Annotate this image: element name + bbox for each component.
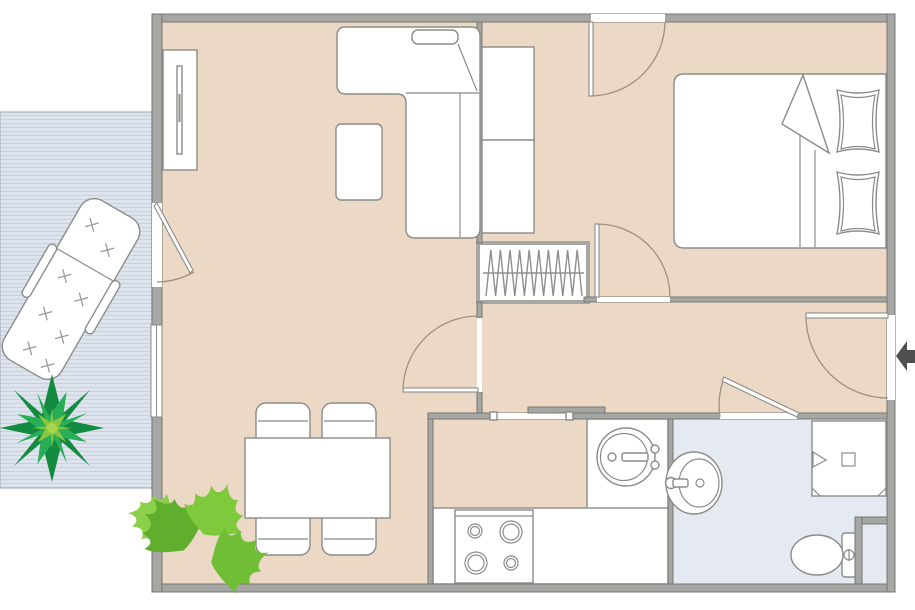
toilet[interactable] xyxy=(791,533,858,577)
tv-icon xyxy=(179,94,181,122)
wardrobe[interactable] xyxy=(482,47,534,233)
entry-arrow-icon xyxy=(896,341,915,371)
wall-living-east-stub2 xyxy=(477,392,482,413)
wall-exterior-top xyxy=(152,14,895,22)
dining-table[interactable] xyxy=(245,438,390,518)
wall-exterior-right xyxy=(887,14,895,592)
bathroom-sink[interactable] xyxy=(666,452,723,514)
wall-exterior-bottom xyxy=(152,584,895,592)
shower[interactable] xyxy=(812,421,886,496)
radiator[interactable] xyxy=(478,243,588,302)
stove[interactable] xyxy=(455,510,533,583)
floor-plan-canvas xyxy=(0,0,915,610)
floor-plan-page xyxy=(0,0,915,610)
tv-unit[interactable] xyxy=(163,50,197,170)
window xyxy=(151,325,162,417)
coffee-table[interactable] xyxy=(336,124,382,200)
wall-kitchen-west xyxy=(428,419,433,584)
